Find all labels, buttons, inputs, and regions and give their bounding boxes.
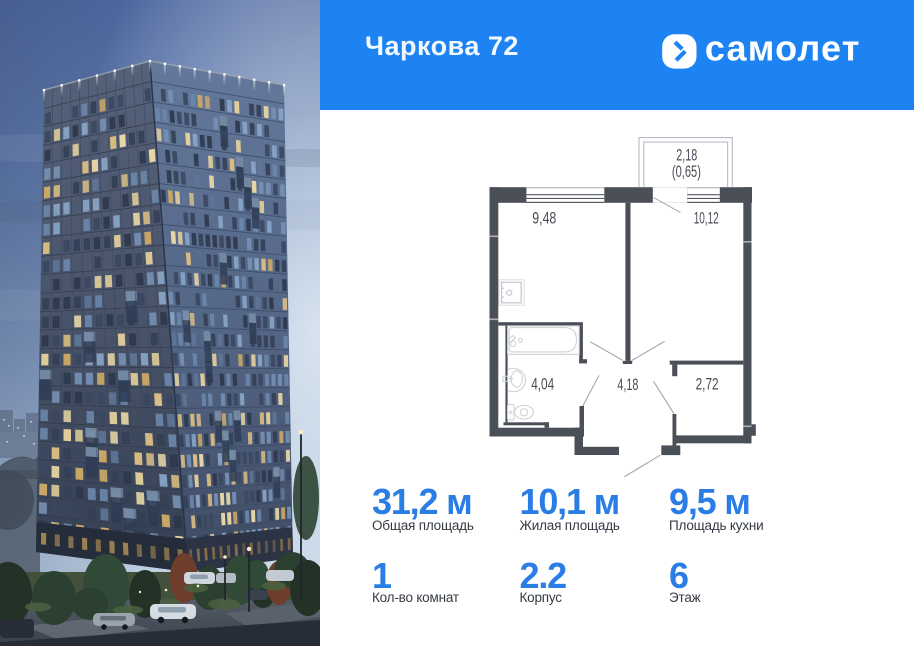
svg-text:10,12: 10,12 <box>694 209 719 228</box>
svg-text:4,04: 4,04 <box>531 375 554 394</box>
svg-text:4,18: 4,18 <box>617 375 638 394</box>
svg-text:самолет: самолет <box>705 28 861 69</box>
svg-text:9,48: 9,48 <box>532 209 556 228</box>
svg-text:(0,65): (0,65) <box>672 162 701 181</box>
svg-text:2,72: 2,72 <box>696 375 719 394</box>
